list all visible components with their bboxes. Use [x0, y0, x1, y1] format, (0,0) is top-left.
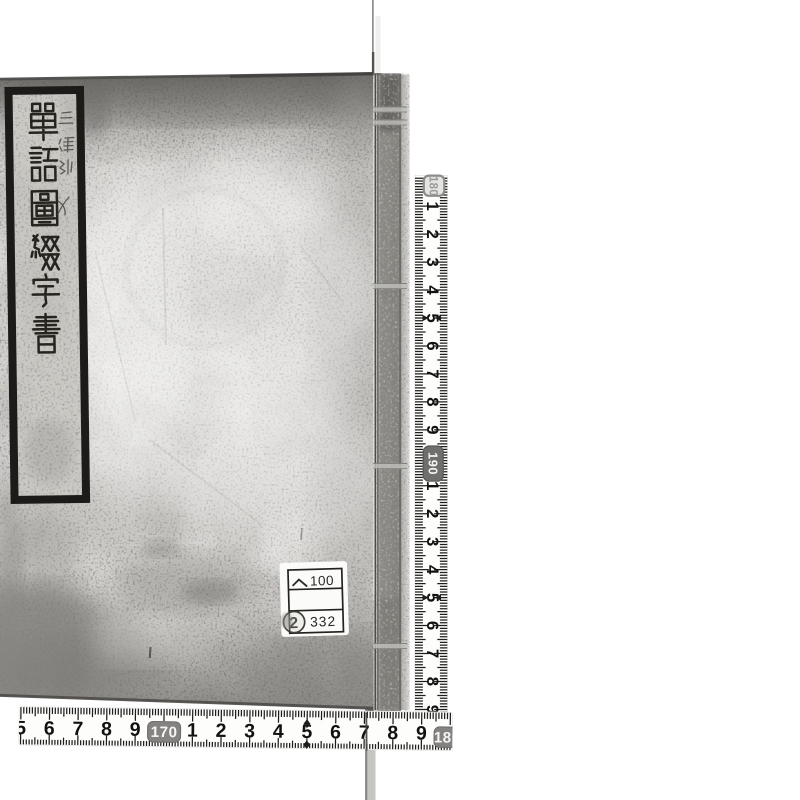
svg-text:6: 6 — [44, 718, 55, 740]
svg-text:9: 9 — [416, 722, 427, 744]
svg-text:6: 6 — [330, 721, 341, 743]
svg-text:3: 3 — [423, 257, 442, 266]
svg-text:3: 3 — [423, 537, 442, 546]
svg-text:8: 8 — [423, 677, 442, 686]
svg-text:7: 7 — [359, 722, 370, 744]
svg-text:170: 170 — [151, 724, 178, 741]
svg-text:1: 1 — [423, 481, 442, 490]
svg-text:6: 6 — [423, 621, 442, 630]
svg-text:8: 8 — [387, 722, 398, 744]
svg-text:9: 9 — [130, 719, 141, 741]
svg-text:9: 9 — [423, 425, 442, 434]
svg-text:8: 8 — [101, 718, 112, 740]
svg-text:2: 2 — [423, 509, 442, 518]
svg-text:3: 3 — [244, 720, 255, 742]
svg-text:180: 180 — [427, 176, 439, 196]
svg-text:6: 6 — [423, 341, 442, 350]
svg-text:1: 1 — [187, 719, 198, 741]
svg-text:4: 4 — [423, 565, 442, 575]
svg-text:2: 2 — [423, 229, 442, 238]
svg-text:190: 190 — [426, 452, 441, 475]
svg-text:100: 100 — [310, 573, 334, 589]
svg-text:7: 7 — [423, 369, 442, 378]
svg-text:4: 4 — [423, 285, 442, 295]
svg-text:1: 1 — [423, 201, 442, 210]
svg-text:2: 2 — [215, 720, 226, 742]
svg-text:332: 332 — [310, 614, 336, 630]
svg-text:7: 7 — [423, 649, 442, 658]
svg-text:8: 8 — [423, 397, 442, 406]
svg-text:7: 7 — [72, 718, 83, 740]
svg-text:4: 4 — [273, 721, 284, 743]
